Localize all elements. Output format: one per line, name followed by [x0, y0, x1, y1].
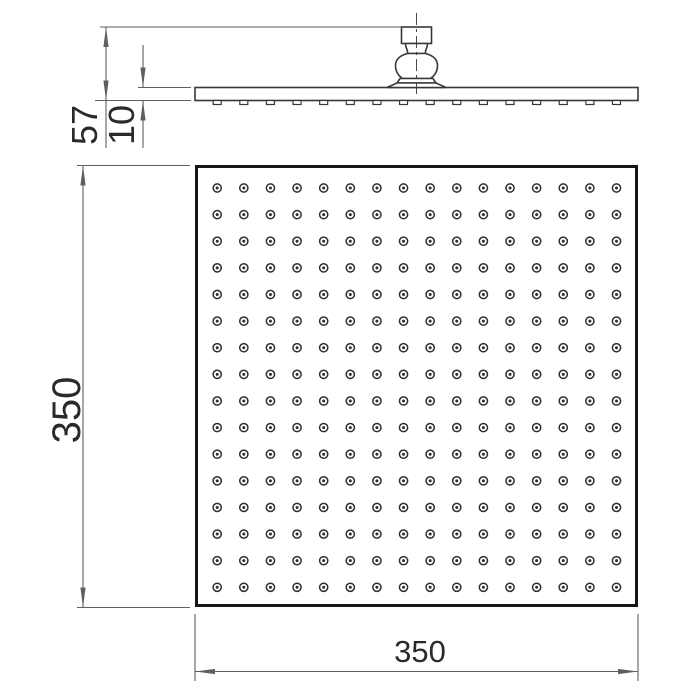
- nozzle-dot-center: [216, 187, 219, 190]
- arrowhead-up: [80, 166, 85, 186]
- nozzle-dot-center: [482, 559, 485, 562]
- nozzle-dot-center: [402, 346, 405, 349]
- nozzle-dot-center: [322, 266, 325, 269]
- nozzle-bump: [533, 101, 541, 105]
- nozzle-dot-center: [509, 373, 512, 376]
- nozzle-dot-center: [296, 479, 299, 482]
- nozzle-dot-center: [535, 426, 538, 429]
- nozzle-dot-center: [375, 213, 378, 216]
- nozzle-dot-center: [482, 399, 485, 402]
- nozzle-dot-center: [216, 213, 219, 216]
- nozzle-dot-center: [269, 293, 272, 296]
- nozzle-dot-center: [455, 399, 458, 402]
- nozzle-dot-center: [588, 453, 591, 456]
- nozzle-dot-center: [242, 266, 245, 269]
- nozzle-dot-center: [562, 373, 565, 376]
- nozzle-dot-center: [535, 187, 538, 190]
- nozzle-dot-center: [402, 586, 405, 589]
- nozzle-dot-center: [482, 320, 485, 323]
- nozzle-dot-center: [349, 533, 352, 536]
- plan-view: [197, 167, 637, 606]
- nozzle-dot-center: [562, 506, 565, 509]
- nozzle-dot-center: [615, 399, 618, 402]
- nozzle-dot-center: [482, 506, 485, 509]
- nozzle-dot-center: [455, 453, 458, 456]
- dimension-label-plan-width: 350: [394, 634, 446, 669]
- nozzle-dot-center: [509, 453, 512, 456]
- nozzle-dot-center: [402, 213, 405, 216]
- nozzle-dot-center: [509, 266, 512, 269]
- nozzle-dot-center: [242, 346, 245, 349]
- nozzle-dot-center: [509, 187, 512, 190]
- nozzle-dot-center: [588, 213, 591, 216]
- nozzle-dot-center: [482, 346, 485, 349]
- nozzle-dot-center: [482, 533, 485, 536]
- nozzle-dot-center: [615, 266, 618, 269]
- nozzle-dot-center: [216, 266, 219, 269]
- nozzle-dot-center: [402, 266, 405, 269]
- nozzle-dot-center: [535, 533, 538, 536]
- nozzle-dot-center: [269, 506, 272, 509]
- nozzle-dot-center: [322, 346, 325, 349]
- nozzle-dot-center: [402, 426, 405, 429]
- arrowhead-right: [618, 669, 638, 674]
- nozzle-dot-center: [482, 426, 485, 429]
- nozzle-dot-center: [216, 559, 219, 562]
- dimension-label-plate-thickness: 10: [101, 105, 142, 145]
- nozzle-dot-center: [535, 559, 538, 562]
- nozzle-dot-center: [615, 240, 618, 243]
- nozzle-dot-center: [375, 453, 378, 456]
- nozzle-dot-center: [482, 240, 485, 243]
- nozzle-bump: [293, 101, 301, 105]
- nozzle-dot-center: [588, 293, 591, 296]
- nozzle-dot-center: [535, 346, 538, 349]
- nozzle-dot-center: [535, 266, 538, 269]
- nozzle-dot-center: [322, 240, 325, 243]
- nozzle-dot-center: [349, 240, 352, 243]
- nozzle-dot-center: [349, 559, 352, 562]
- nozzle-dot-center: [296, 320, 299, 323]
- nozzle-dot-center: [349, 586, 352, 589]
- nozzle-dot-center: [429, 320, 432, 323]
- nozzle-dot-center: [429, 240, 432, 243]
- nozzle-dot-center: [455, 240, 458, 243]
- nozzle-dot-center: [535, 320, 538, 323]
- nozzle-dot-center: [402, 479, 405, 482]
- nozzle-dot-center: [375, 346, 378, 349]
- nozzle-dot-center: [216, 399, 219, 402]
- nozzle-dot-center: [455, 320, 458, 323]
- arrowhead-up: [103, 27, 108, 47]
- nozzle-dot-center: [509, 533, 512, 536]
- nozzle-dot-center: [482, 586, 485, 589]
- nozzle-dot-center: [375, 586, 378, 589]
- nozzle-dot-center: [322, 453, 325, 456]
- nozzle-dot-center: [296, 346, 299, 349]
- nozzle-dot-center: [216, 453, 219, 456]
- nozzle-dot-center: [375, 373, 378, 376]
- arrowhead-down: [103, 81, 108, 101]
- nozzle-dot-center: [429, 346, 432, 349]
- nozzle-dot-center: [562, 479, 565, 482]
- nozzle-dot-center: [402, 533, 405, 536]
- nozzle-dot-center: [349, 320, 352, 323]
- nozzle-dot-center: [562, 399, 565, 402]
- nozzle-dot-center: [242, 373, 245, 376]
- nozzle-bump: [559, 101, 567, 105]
- nozzle-dot-center: [615, 506, 618, 509]
- nozzle-dot-center: [242, 320, 245, 323]
- nozzle-dot-center: [296, 426, 299, 429]
- nozzle-dot-center: [562, 213, 565, 216]
- nozzle-dot-center: [562, 240, 565, 243]
- nozzle-dot-center: [455, 533, 458, 536]
- nozzle-dot-center: [269, 399, 272, 402]
- nozzle-dot-center: [375, 559, 378, 562]
- nozzle-dot-center: [375, 187, 378, 190]
- nozzle-dot-center: [509, 559, 512, 562]
- nozzle-dot-center: [615, 479, 618, 482]
- nozzle-dot-center: [429, 266, 432, 269]
- nozzle-dot-center: [402, 399, 405, 402]
- nozzle-dot-center: [615, 559, 618, 562]
- nozzle-dot-center: [296, 266, 299, 269]
- nozzle-dot-center: [216, 346, 219, 349]
- nozzle-dot-center: [216, 293, 219, 296]
- nozzle-dot-center: [429, 399, 432, 402]
- nozzle-dot-center: [216, 479, 219, 482]
- nozzle-dot-center: [615, 426, 618, 429]
- nozzle-dot-center: [269, 320, 272, 323]
- nozzle-dot-center: [482, 373, 485, 376]
- nozzle-dot-center: [216, 533, 219, 536]
- nozzle-dot-center: [509, 426, 512, 429]
- nozzle-dot-center: [242, 506, 245, 509]
- nozzle-dot-center: [455, 293, 458, 296]
- nozzle-dot-center: [296, 373, 299, 376]
- nozzle-dot-center: [375, 533, 378, 536]
- nozzle-dot-center: [322, 373, 325, 376]
- nozzle-dot-center: [375, 399, 378, 402]
- nozzle-dot-center: [588, 266, 591, 269]
- nozzle-dot-center: [296, 533, 299, 536]
- nozzle-dot-center: [509, 320, 512, 323]
- nozzle-dot-center: [482, 479, 485, 482]
- nozzle-bump: [586, 101, 594, 105]
- nozzle-dot-center: [562, 320, 565, 323]
- nozzle-dot-center: [509, 240, 512, 243]
- nozzle-dot-center: [242, 533, 245, 536]
- nozzle-dot-center: [322, 533, 325, 536]
- nozzle-dot-center: [216, 586, 219, 589]
- nozzle-dot-center: [509, 293, 512, 296]
- nozzle-dot-center: [482, 187, 485, 190]
- nozzle-dot-center: [535, 399, 538, 402]
- nozzle-dot-center: [375, 506, 378, 509]
- nozzle-dot-center: [216, 373, 219, 376]
- nozzle-dot-center: [402, 320, 405, 323]
- nozzle-bump: [426, 101, 434, 105]
- nozzle-bump: [613, 101, 621, 105]
- nozzle-dot-center: [269, 240, 272, 243]
- nozzle-dot-center: [535, 453, 538, 456]
- nozzle-dot-center: [455, 506, 458, 509]
- nozzle-dot-center: [535, 506, 538, 509]
- nozzle-dot-center: [322, 506, 325, 509]
- nozzle-dot-center: [402, 293, 405, 296]
- nozzle-dot-center: [349, 453, 352, 456]
- nozzle-dot-center: [375, 479, 378, 482]
- nozzle-dot-center: [242, 213, 245, 216]
- nozzle-bump: [240, 101, 248, 105]
- nozzle-dot-center: [242, 240, 245, 243]
- nozzle-dot-center: [588, 187, 591, 190]
- nozzle-dot-center: [349, 213, 352, 216]
- nozzle-bump: [453, 101, 461, 105]
- nozzle-dot-center: [375, 266, 378, 269]
- nozzle-dot-center: [349, 506, 352, 509]
- nozzle-dot-center: [509, 399, 512, 402]
- nozzle-dot-center: [402, 559, 405, 562]
- connector: [387, 13, 446, 97]
- nozzle-dot-center: [615, 373, 618, 376]
- nozzle-dot-center: [588, 506, 591, 509]
- nozzle-dot-center: [269, 213, 272, 216]
- nozzle-dot-center: [322, 399, 325, 402]
- nozzle-dot-center: [482, 453, 485, 456]
- nozzle-dot-center: [322, 559, 325, 562]
- nozzle-dot-center: [216, 426, 219, 429]
- nozzle-dot-center: [349, 373, 352, 376]
- nozzle-dot-center: [455, 213, 458, 216]
- nozzle-dot-center: [615, 187, 618, 190]
- nozzle-dot-center: [455, 586, 458, 589]
- nozzle-dot-center: [429, 559, 432, 562]
- nozzle-dot-center: [429, 586, 432, 589]
- nozzle-dot-center: [216, 240, 219, 243]
- nozzle-dot-center: [429, 506, 432, 509]
- nozzle-dot-center: [562, 559, 565, 562]
- nozzle-dot-center: [509, 586, 512, 589]
- nozzle-dot-center: [242, 559, 245, 562]
- nozzle-dot-center: [562, 453, 565, 456]
- nozzle-dot-center: [562, 293, 565, 296]
- nozzle-dot-center: [588, 533, 591, 536]
- technical-drawing-canvas: 57 10 350 350: [0, 0, 700, 700]
- nozzle-dot-center: [242, 479, 245, 482]
- nozzle-dot-center: [402, 506, 405, 509]
- nozzle-dot-center: [269, 266, 272, 269]
- nozzle-dot-center: [296, 399, 299, 402]
- nozzle-dot-center: [429, 373, 432, 376]
- nozzle-dot-center: [242, 293, 245, 296]
- nozzle-dot-center: [322, 187, 325, 190]
- nozzle-dot-center: [322, 293, 325, 296]
- nozzle-dot-center: [615, 293, 618, 296]
- nozzle-dot-center: [242, 399, 245, 402]
- nozzle-dot-center: [615, 213, 618, 216]
- nozzle-dot-center: [429, 426, 432, 429]
- nozzle-dot-center: [402, 240, 405, 243]
- nozzle-dot-center: [588, 399, 591, 402]
- nozzle-dot-center: [296, 559, 299, 562]
- nozzle-dot-center: [588, 479, 591, 482]
- nozzle-bump: [346, 101, 354, 105]
- nozzle-dot-center: [349, 346, 352, 349]
- nozzle-dot-center: [535, 373, 538, 376]
- nozzle-dot-center: [402, 187, 405, 190]
- dimension-label-plan-height: 350: [45, 377, 89, 444]
- nozzle-dot-center: [349, 187, 352, 190]
- nozzle-dot-center: [322, 426, 325, 429]
- nozzle-dot-center: [509, 346, 512, 349]
- nozzle-dot-center: [562, 266, 565, 269]
- nozzle-dot-center: [269, 426, 272, 429]
- nozzle-dot-center: [296, 586, 299, 589]
- nozzle-dot-center: [588, 559, 591, 562]
- nozzle-dot-center: [429, 533, 432, 536]
- nozzle-dot-center: [588, 346, 591, 349]
- nozzle-dot-center: [509, 479, 512, 482]
- nozzle-dot-center: [242, 187, 245, 190]
- nozzle-dot-center: [269, 346, 272, 349]
- nozzle-dot-center: [269, 479, 272, 482]
- nozzle-dot-center: [296, 187, 299, 190]
- nozzle-dot-center: [455, 346, 458, 349]
- nozzle-dot-center: [588, 426, 591, 429]
- nozzle-dot-center: [535, 586, 538, 589]
- nozzle-dot-center: [296, 506, 299, 509]
- nozzle-dot-center: [375, 293, 378, 296]
- shower-head-drawing: 57 10 350 350: [0, 0, 700, 700]
- nozzle-dot-center: [535, 479, 538, 482]
- nozzle-dot-center: [322, 479, 325, 482]
- nozzle-bump: [266, 101, 274, 105]
- nozzle-bump: [320, 101, 328, 105]
- nozzle-dot-center: [375, 320, 378, 323]
- nozzle-dot-center: [322, 320, 325, 323]
- nozzle-dot-center: [242, 586, 245, 589]
- nozzle-dot-center: [588, 240, 591, 243]
- nozzle-dot-center: [375, 426, 378, 429]
- nozzle-dot-center: [349, 426, 352, 429]
- nozzle-dot-center: [615, 453, 618, 456]
- nozzle-dot-center: [562, 187, 565, 190]
- nozzle-dot-center: [535, 293, 538, 296]
- nozzle-dot-center: [402, 373, 405, 376]
- nozzle-dot-center: [429, 479, 432, 482]
- plan-view-face-plate: [197, 167, 637, 606]
- nozzle-dot-center: [455, 479, 458, 482]
- nozzle-dot-center: [429, 187, 432, 190]
- nozzle-dot-center: [588, 320, 591, 323]
- arrowhead-down: [80, 588, 85, 608]
- nozzle-dot-center: [349, 293, 352, 296]
- nozzle-dot-center: [562, 426, 565, 429]
- nozzle-dot-center: [296, 240, 299, 243]
- nozzle-dot-center: [349, 479, 352, 482]
- nozzle-dot-center: [615, 533, 618, 536]
- nozzle-dot-center: [455, 426, 458, 429]
- nozzle-dot-center: [535, 213, 538, 216]
- nozzle-dot-center: [349, 266, 352, 269]
- nozzle-dot-center: [242, 453, 245, 456]
- nozzle-dot-center: [482, 266, 485, 269]
- nozzle-dot-center: [562, 346, 565, 349]
- nozzle-dot-center: [269, 586, 272, 589]
- nozzle-dot-center: [349, 399, 352, 402]
- nozzle-dot-center: [482, 293, 485, 296]
- nozzle-dot-center: [269, 559, 272, 562]
- nozzle-dot-center: [455, 187, 458, 190]
- nozzle-bump: [506, 101, 514, 105]
- nozzle-dot-center: [402, 453, 405, 456]
- nozzle-dot-center: [482, 213, 485, 216]
- nozzle-dot-center: [269, 533, 272, 536]
- nozzle-bump: [400, 101, 408, 105]
- nozzle-dot-center: [322, 213, 325, 216]
- nozzle-dot-center: [455, 373, 458, 376]
- nozzle-dot-center: [216, 506, 219, 509]
- nozzle-dot-center: [562, 533, 565, 536]
- dimension-label-height: 57: [64, 105, 105, 145]
- nozzle-dot-center: [242, 426, 245, 429]
- nozzle-dot-center: [588, 373, 591, 376]
- nozzle-dot-center: [296, 453, 299, 456]
- nozzle-dot-center: [429, 213, 432, 216]
- nozzle-dot-center: [269, 373, 272, 376]
- nozzle-dot-center: [429, 453, 432, 456]
- nozzle-bump: [479, 101, 487, 105]
- nozzle-dot-center: [588, 586, 591, 589]
- nozzle-dot-center: [455, 266, 458, 269]
- arrowhead-down: [140, 68, 145, 88]
- nozzle-bump: [373, 101, 381, 105]
- nozzle-bump: [213, 101, 221, 105]
- nozzle-dot-center: [375, 240, 378, 243]
- nozzle-dot-center: [296, 293, 299, 296]
- nozzle-dot-center: [455, 559, 458, 562]
- nozzle-dot-center: [269, 453, 272, 456]
- nozzle-dot-center: [429, 293, 432, 296]
- nozzle-dot-center: [269, 187, 272, 190]
- nozzle-dot-center: [509, 506, 512, 509]
- nozzle-dot-center: [562, 586, 565, 589]
- arrowhead-left: [195, 669, 215, 674]
- nozzle-dot-center: [322, 586, 325, 589]
- nozzle-dot-center: [509, 213, 512, 216]
- nozzle-dot-center: [296, 213, 299, 216]
- nozzle-dot-center: [615, 346, 618, 349]
- nozzle-dot-center: [615, 320, 618, 323]
- nozzle-dot-center: [535, 240, 538, 243]
- nozzle-dot-center: [615, 586, 618, 589]
- nozzle-dot-center: [216, 320, 219, 323]
